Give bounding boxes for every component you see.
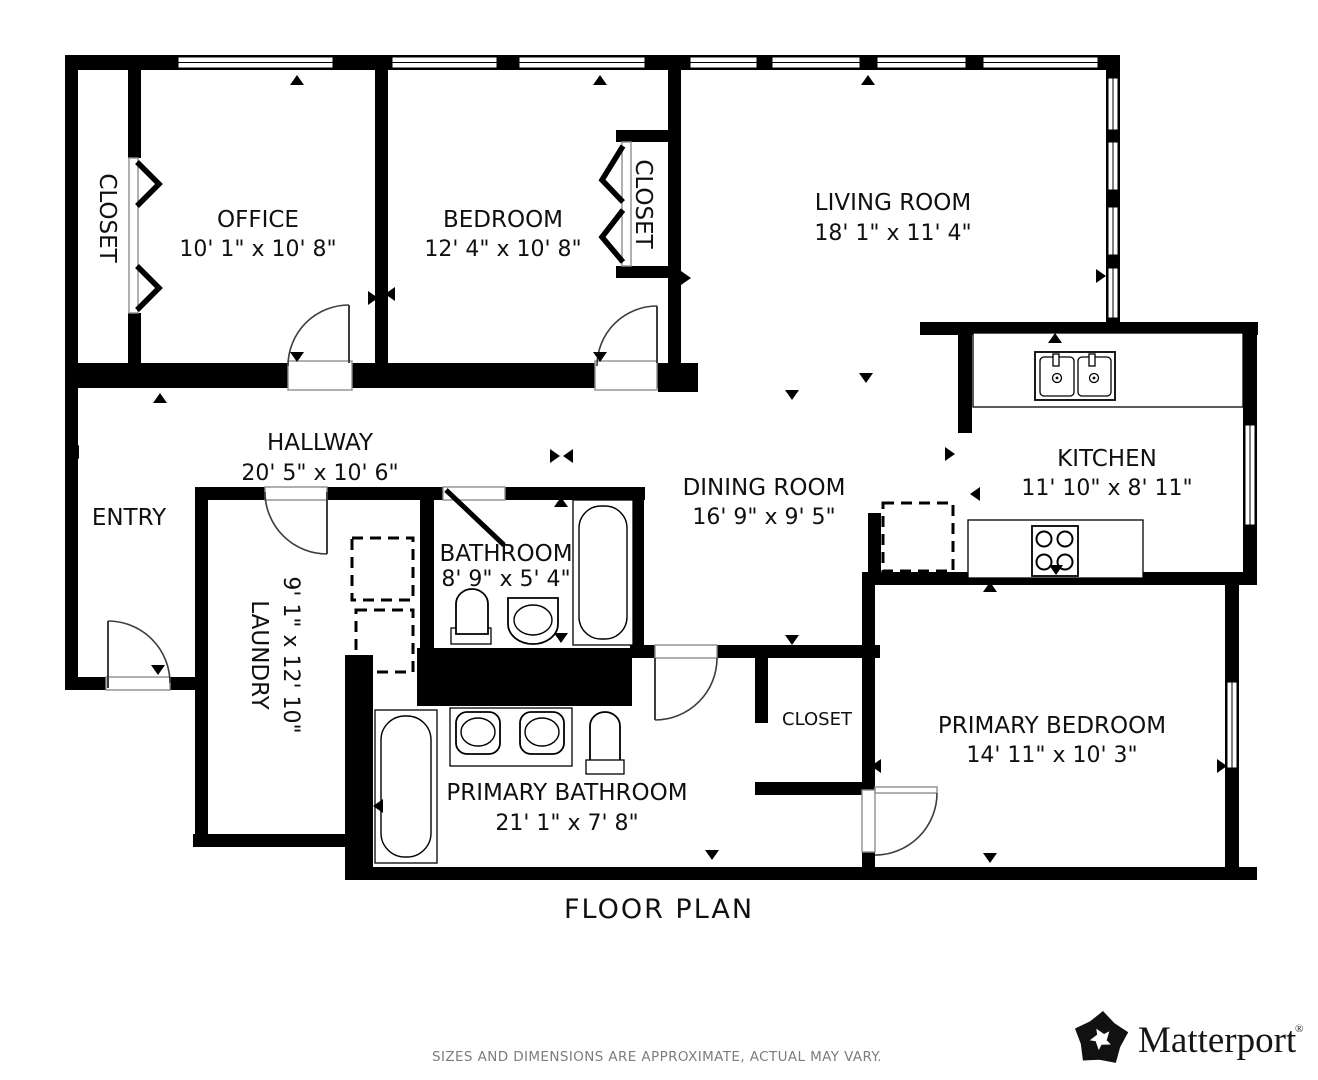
bedroom-closet-label: CLOSET <box>630 159 656 249</box>
kitchen-name: KITCHEN <box>1057 446 1157 472</box>
bathroom-bathtub-icon <box>573 500 633 645</box>
room-label-living-room: LIVING ROOM 18' 1" x 11' 4" <box>814 190 971 246</box>
primary-bathroom-dims: 21' 1" x 7' 8" <box>495 811 638 836</box>
floor-plan-page: OFFICE 10' 1" x 10' 8" BEDROOM 12' 4" x … <box>0 0 1318 1080</box>
room-label-primary-bedroom: PRIMARY BEDROOM 14' 11" x 10' 3" <box>938 713 1166 768</box>
primary-bedroom-door-swing <box>862 787 937 855</box>
room-label-entry: ENTRY <box>92 505 167 531</box>
matterport-wordmark: Matterport <box>1138 1020 1297 1061</box>
floor-plan-drawing: OFFICE 10' 1" x 10' 8" BEDROOM 12' 4" x … <box>0 0 1318 1080</box>
primary-toilet-icon <box>586 712 624 774</box>
bathroom-dims: 8' 9" x 5' 4" <box>441 567 570 592</box>
laundry-door-swing <box>265 487 327 554</box>
entry-door-swing <box>106 621 170 690</box>
primary-bedroom-dims: 14' 11" x 10' 3" <box>966 743 1137 768</box>
washer-outline <box>352 538 413 600</box>
primary-closet-label: CLOSET <box>782 709 853 730</box>
bathroom-door <box>443 487 505 545</box>
primary-bathtub-icon <box>375 710 437 863</box>
room-label-bedroom: BEDROOM 12' 4" x 10' 8" <box>424 207 581 262</box>
laundry-dims: 9' 1" x 12' 10" <box>278 576 303 733</box>
room-label-bathroom: BATHROOM 8' 9" x 5' 4" <box>439 541 572 592</box>
refrigerator-outline <box>883 503 953 571</box>
hallway-name: HALLWAY <box>267 430 374 456</box>
office-closet-label: CLOSET <box>94 173 120 263</box>
office-dims: 10' 1" x 10' 8" <box>179 237 336 262</box>
living-room-dims: 18' 1" x 11' 4" <box>814 221 971 246</box>
living-room-name: LIVING ROOM <box>815 190 972 216</box>
laundry-name: LAUNDRY <box>246 600 272 710</box>
office-door-swing <box>288 305 352 390</box>
primary-bathroom-name: PRIMARY BATHROOM <box>446 780 687 806</box>
room-label-office: OFFICE 10' 1" x 10' 8" <box>179 207 336 262</box>
bedroom-dims: 12' 4" x 10' 8" <box>424 237 581 262</box>
bathroom-name: BATHROOM <box>439 541 572 567</box>
primary-bedroom-name: PRIMARY BEDROOM <box>938 713 1166 739</box>
office-name: OFFICE <box>217 207 299 233</box>
primary-vanity-double-sink-icon <box>450 708 572 766</box>
hallway-dims: 20' 5" x 10' 6" <box>241 461 398 486</box>
bedroom-door-swing <box>595 306 657 390</box>
room-label-primary-bathroom: PRIMARY BATHROOM 21' 1" x 7' 8" <box>446 780 687 836</box>
matterport-logo: Matterport ® <box>1070 1011 1303 1072</box>
room-label-hallway: HALLWAY 20' 5" x 10' 6" <box>241 430 398 486</box>
matterport-icon <box>1070 1011 1133 1072</box>
dining-room-name: DINING ROOM <box>683 475 846 501</box>
bedroom-name: BEDROOM <box>443 207 563 233</box>
room-label-kitchen: KITCHEN 11' 10" x 8' 11" <box>1021 446 1192 501</box>
kitchen-double-sink-icon <box>1035 352 1115 400</box>
room-label-laundry: LAUNDRY 9' 1" x 12' 10" <box>246 576 303 733</box>
room-label-dining-room: DINING ROOM 16' 9" x 9' 5" <box>683 475 846 530</box>
primary-bathroom-door-swing <box>655 645 717 720</box>
bathroom-pedestal-sink-icon <box>451 589 491 644</box>
bedroom-closet-bifold-doors <box>602 142 631 266</box>
registered-mark: ® <box>1295 1023 1303 1035</box>
dining-room-dims: 16' 9" x 9' 5" <box>692 505 835 530</box>
entry-name: ENTRY <box>92 505 167 531</box>
office-closet-bifold-doors <box>129 158 159 313</box>
bathroom-toilet-icon <box>508 598 558 644</box>
kitchen-dims: 11' 10" x 8' 11" <box>1021 476 1192 501</box>
disclaimer-text: SIZES AND DIMENSIONS ARE APPROXIMATE, AC… <box>432 1049 882 1065</box>
page-title: FLOOR PLAN <box>564 894 754 925</box>
